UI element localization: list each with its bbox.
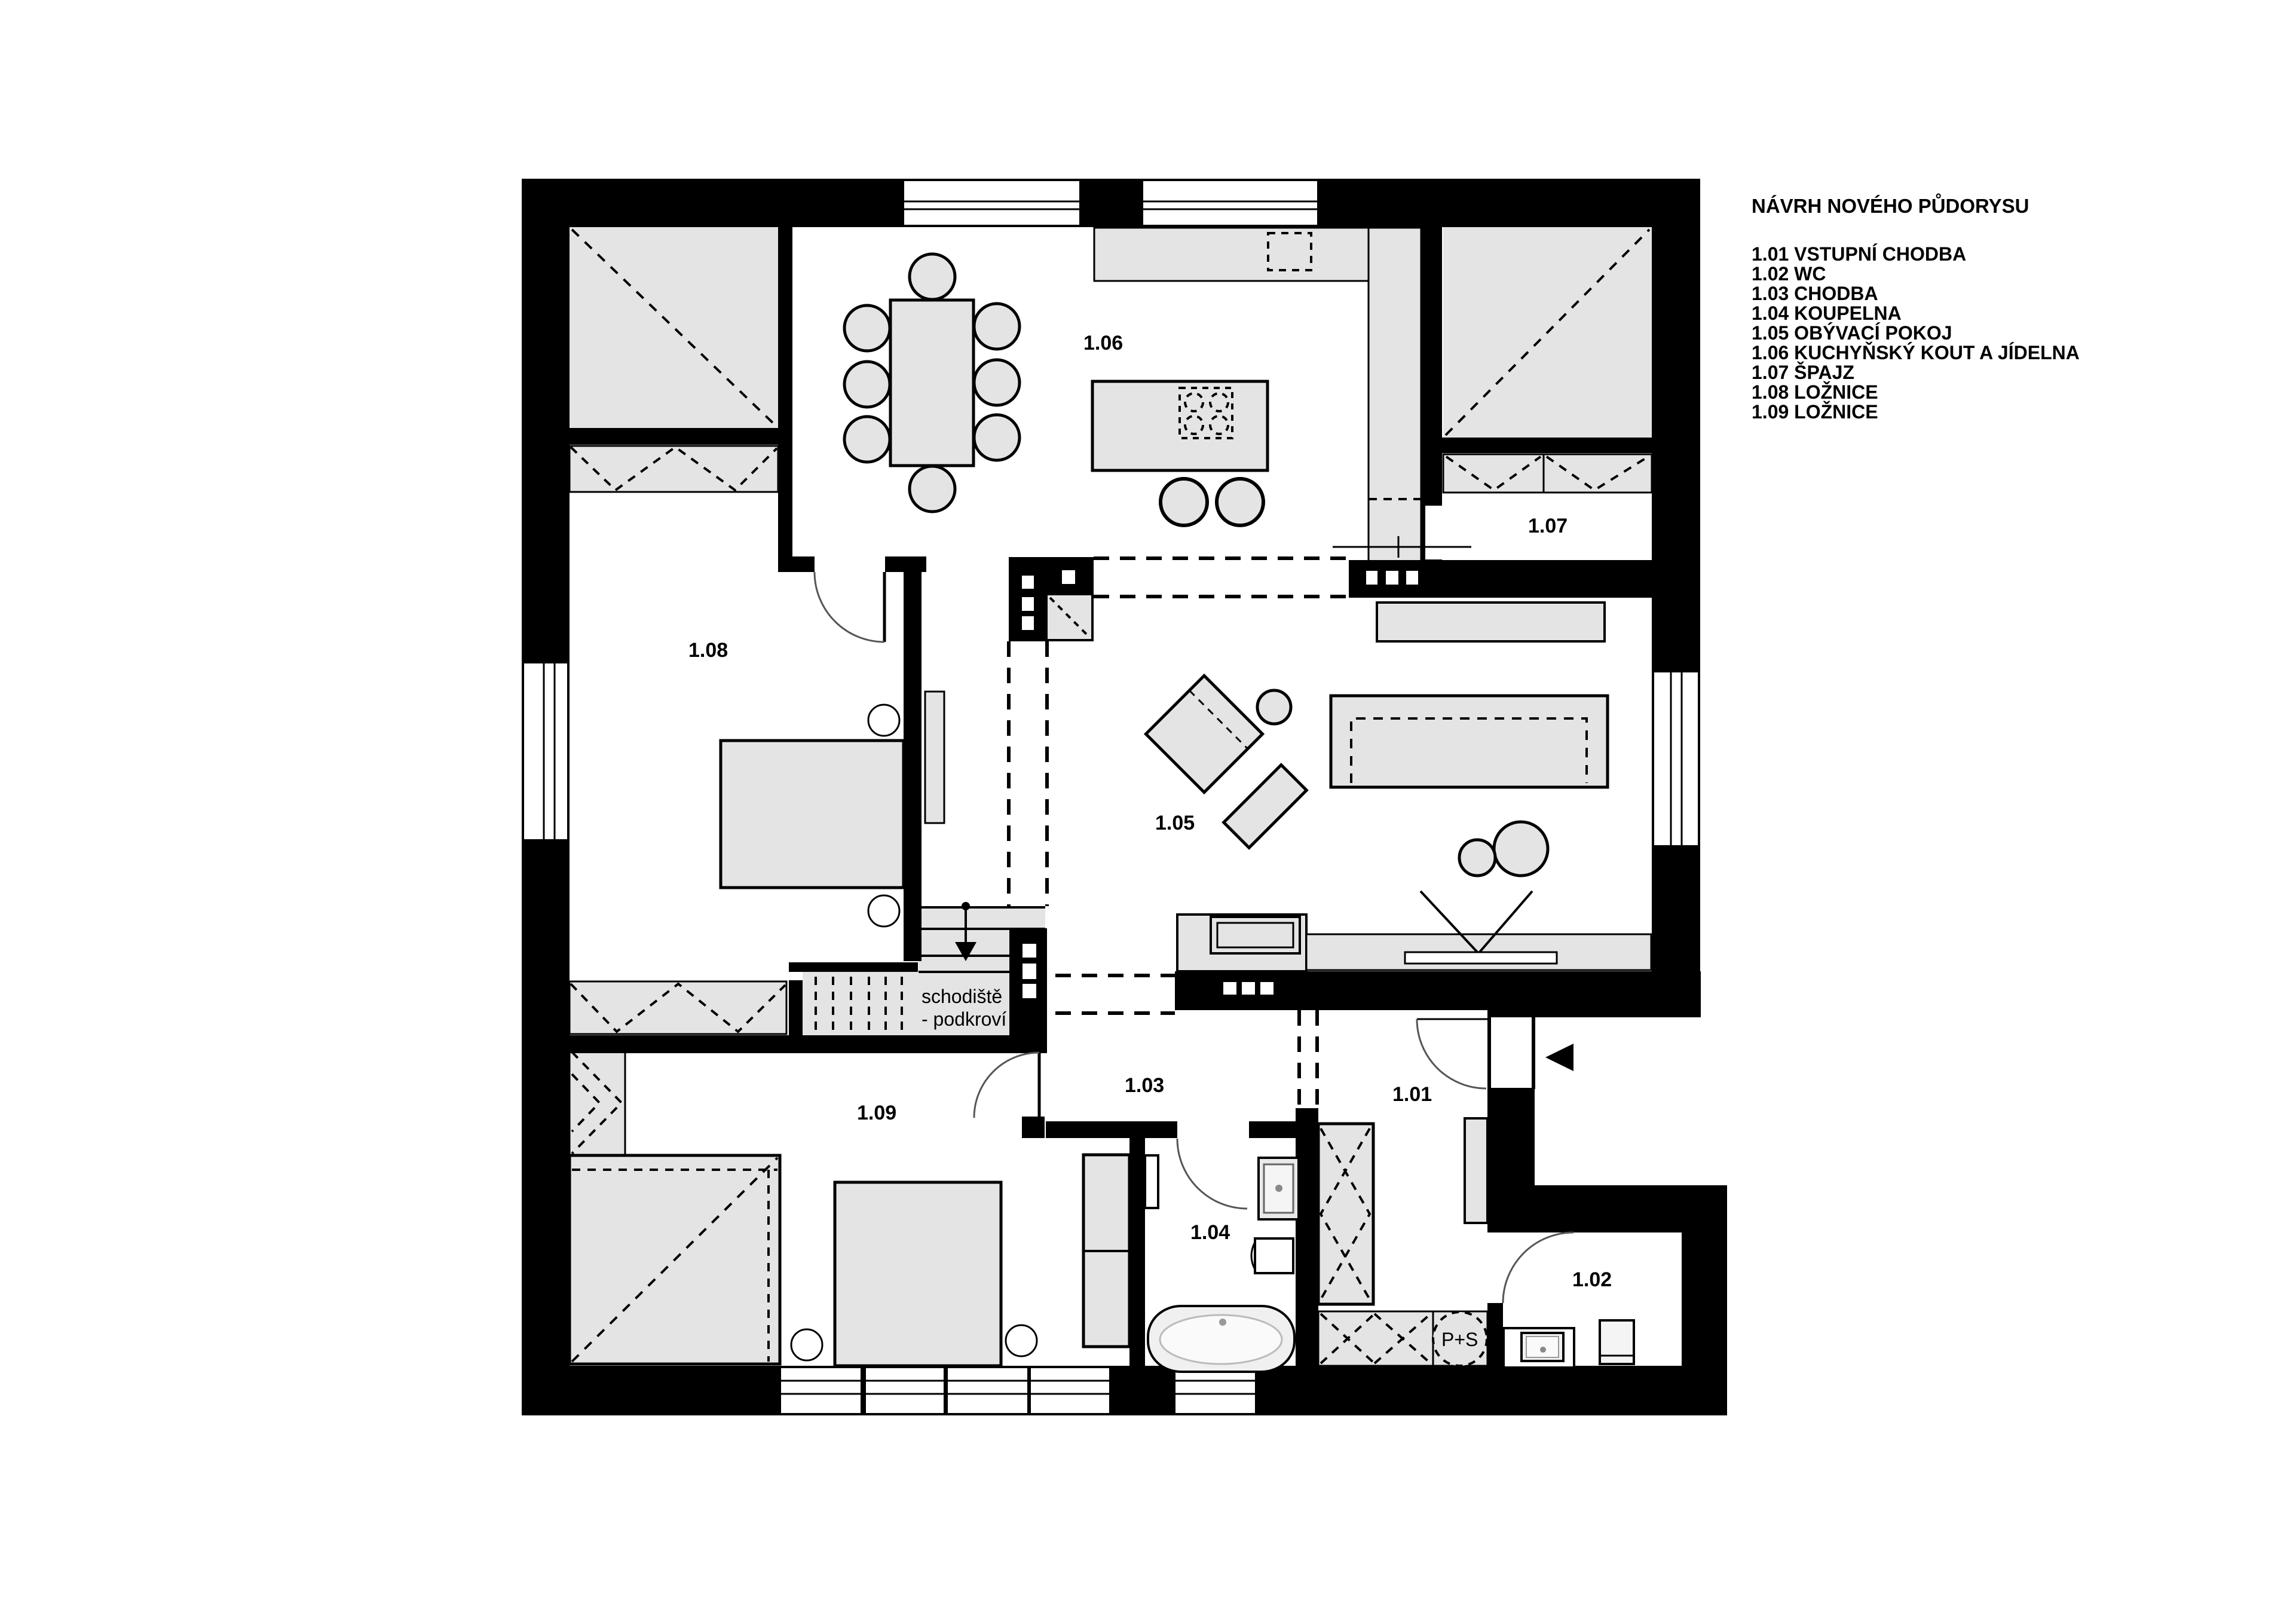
svg-text:1.09 LOŽNICE: 1.09 LOŽNICE	[1752, 401, 1878, 423]
svg-text:1.06 KUCHYŇSKÝ KOUT A JÍDELNA: 1.06 KUCHYŇSKÝ KOUT A JÍDELNA	[1752, 342, 2080, 363]
svg-text:1.07 ŠPAJZ: 1.07 ŠPAJZ	[1752, 362, 1854, 383]
svg-text:schodiště: schodiště	[922, 986, 1002, 1007]
svg-text:1.01 VSTUPNÍ CHODBA: 1.01 VSTUPNÍ CHODBA	[1752, 243, 1966, 265]
svg-text:1.09: 1.09	[857, 1102, 896, 1124]
svg-text:1.08: 1.08	[688, 639, 728, 662]
svg-text:1.04: 1.04	[1190, 1221, 1230, 1244]
svg-text:1.02: 1.02	[1572, 1268, 1612, 1291]
svg-text:1.01: 1.01	[1392, 1083, 1432, 1106]
svg-text:1.03 CHODBA: 1.03 CHODBA	[1752, 283, 1878, 304]
svg-text:- podkroví: - podkroví	[922, 1008, 1006, 1030]
svg-text:P+S: P+S	[1441, 1329, 1478, 1350]
svg-text:1.05: 1.05	[1155, 812, 1195, 834]
svg-text:1.08 LOŽNICE: 1.08 LOŽNICE	[1752, 381, 1878, 403]
svg-text:1.05 OBÝVACÍ POKOJ: 1.05 OBÝVACÍ POKOJ	[1752, 322, 1952, 344]
svg-text:1.02 WC: 1.02 WC	[1752, 263, 1826, 285]
svg-text:1.07: 1.07	[1528, 515, 1568, 537]
svg-text:NÁVRH NOVÉHO PŮDORYSU: NÁVRH NOVÉHO PŮDORYSU	[1752, 193, 2029, 217]
svg-text:1.06: 1.06	[1083, 332, 1123, 354]
svg-text:1.04 KOUPELNA: 1.04 KOUPELNA	[1752, 302, 1902, 324]
svg-text:1.03: 1.03	[1125, 1074, 1164, 1097]
